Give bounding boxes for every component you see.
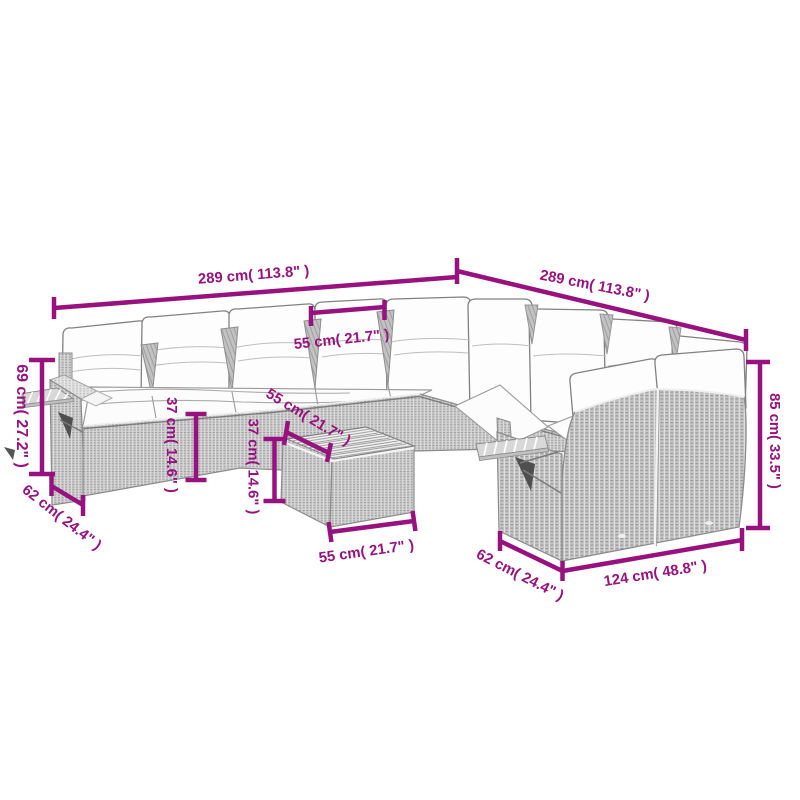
svg-text:85 cm( 33.5" ): 85 cm( 33.5" ): [766, 393, 782, 489]
svg-text:69 cm( 27.2" ): 69 cm( 27.2" ): [13, 364, 30, 468]
svg-text:37 cm( 14.6" ): 37 cm( 14.6" ): [163, 397, 179, 493]
svg-text:37 cm( 14.6" ): 37 cm( 14.6" ): [245, 419, 261, 515]
